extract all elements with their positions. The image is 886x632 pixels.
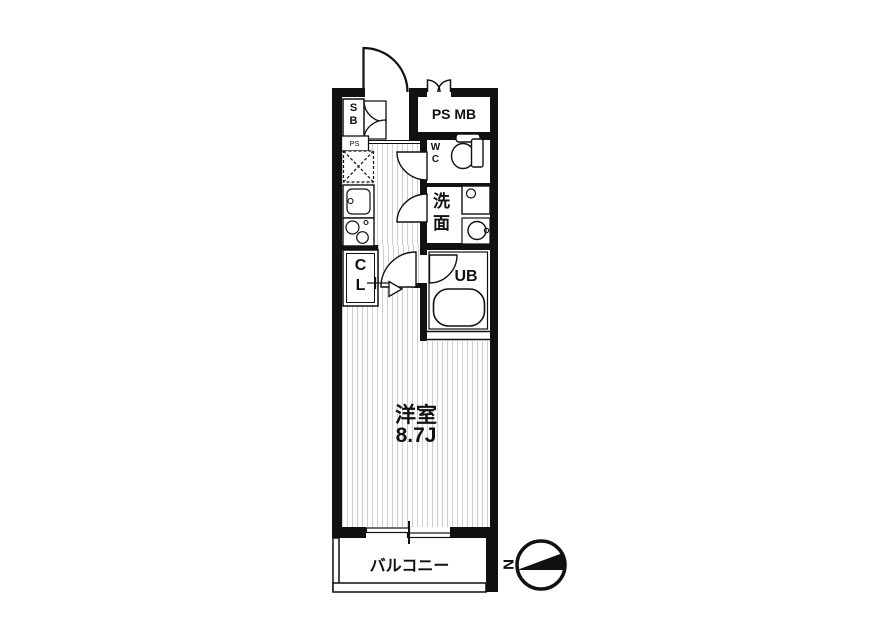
wc-door-icon	[397, 152, 427, 180]
balcony-wall-bottom	[333, 583, 486, 592]
washing-machine-icon	[462, 186, 490, 214]
sliding-window-icon	[367, 521, 451, 544]
unit-bath-bottom-wall	[427, 332, 490, 340]
room-door-icon	[381, 252, 416, 287]
stove-icon	[343, 218, 374, 246]
compass-icon	[517, 541, 565, 589]
unit-bath-label: UB	[443, 268, 489, 286]
basin-icon	[462, 218, 490, 244]
compass-north-label: N	[501, 556, 518, 574]
toilet-icon	[452, 134, 484, 169]
floor-plan: S B PS PS MB W C 洗 面 C L UB 洋室 8.7J バルコニ…	[0, 0, 886, 632]
ps-mb-label: PS MB	[418, 106, 490, 122]
fixtures-layer	[0, 0, 886, 632]
shoe-box-label: S B	[343, 102, 364, 128]
washroom-label: 洗 面	[431, 191, 452, 235]
closet-label: C L	[343, 256, 378, 296]
kitchen-sink-icon	[343, 185, 374, 218]
pipe-space-label: PS	[341, 139, 368, 148]
bathtub-icon	[434, 289, 485, 326]
washroom-door-icon	[397, 194, 427, 222]
shoe-box-door-icon	[364, 101, 386, 122]
refrigerator-space-icon	[344, 151, 374, 182]
wc-label: W C	[427, 142, 444, 165]
entry-step-line	[364, 141, 420, 144]
balcony-label: バルコニー	[333, 552, 486, 576]
room-size-label: 8.7J	[342, 424, 490, 448]
entrance-door-icon	[364, 48, 408, 92]
